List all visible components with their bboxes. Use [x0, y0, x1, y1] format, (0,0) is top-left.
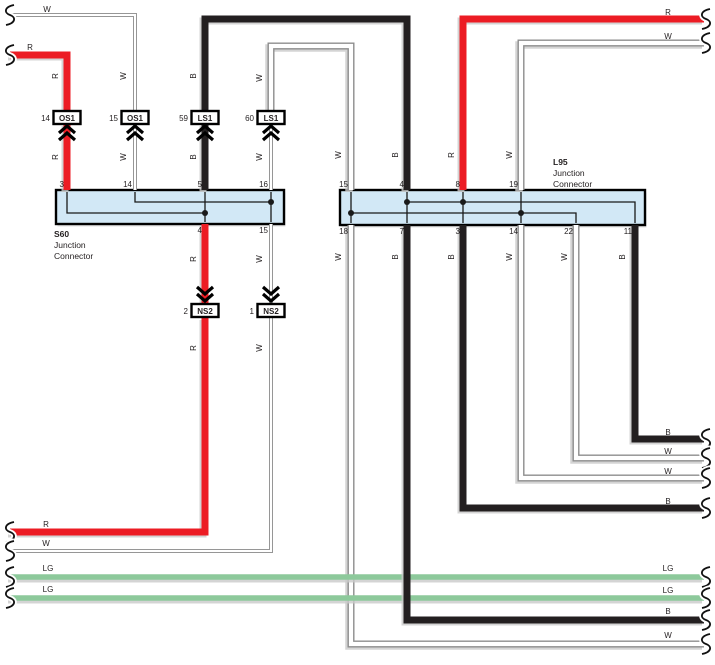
pin-number: 16: [259, 180, 268, 189]
wire-color-label: W: [255, 255, 264, 263]
pin-number: 5: [198, 180, 203, 189]
pin-number: 14: [123, 180, 132, 189]
pin-number: 3: [456, 227, 461, 236]
wire-color-label: B: [189, 154, 198, 159]
connector-number: 2: [184, 307, 189, 316]
junction-box-s60: [56, 190, 284, 224]
wiring-diagram: OS114OS115LS159LS160NS22NS21314516415S60…: [0, 0, 715, 665]
wire-color-label: W: [255, 344, 264, 352]
connector-ls1-60: LS160: [245, 111, 284, 140]
wire-color-label: LG: [43, 585, 54, 594]
wire-color-label: W: [255, 74, 264, 82]
pin-number: 4: [198, 226, 203, 235]
wire-color-label: R: [27, 43, 33, 52]
junction-connector-name-s60: S60: [54, 229, 69, 239]
junction-connector-name-s60: Connector: [54, 251, 93, 261]
junction-connector-name-l95: Connector: [553, 179, 592, 189]
pin-number: 14: [509, 227, 518, 236]
wire-white-outline-top-left-white: [10, 15, 135, 111]
wire-color-label: B: [665, 607, 670, 616]
wire-color-label: B: [391, 254, 400, 259]
junction-box-l95: [340, 190, 645, 225]
wire-color-label: W: [560, 253, 569, 261]
wire-color-label: W: [42, 539, 50, 548]
junction-connector-name-l95: Junction: [553, 168, 585, 178]
wire-white-core-l95-22-white: [576, 225, 704, 458]
pin-number: 11: [624, 227, 633, 236]
connector-number: 59: [179, 114, 188, 123]
connector-ns2-1: NS21: [250, 287, 285, 317]
wire-color-label: B: [447, 254, 456, 259]
connector-number: 14: [41, 114, 50, 123]
pin-number: 19: [509, 180, 518, 189]
pin-number: 8: [456, 180, 461, 189]
wiring-diagram-page: OS114OS115LS159LS160NS22NS21314516415S60…: [0, 0, 715, 665]
junction-connector-name-s60: Junction: [54, 240, 86, 250]
wire-white-outline-top-right-white: [521, 43, 704, 190]
wire-white-core-top-left-white: [10, 15, 135, 111]
wire-color-label: W: [664, 467, 672, 476]
wire-color-label: B: [665, 497, 670, 506]
wire-shadow: [8, 57, 65, 113]
wire-color-label: W: [505, 151, 514, 159]
wire-black-l95-11-black: [635, 225, 704, 439]
junction-dot: [348, 210, 354, 216]
wire-shadow: [405, 227, 702, 622]
wire-color-label: W: [334, 151, 343, 159]
wire-color-label: W: [43, 5, 51, 14]
wire-color-label: W: [664, 631, 672, 640]
wire-color-label: W: [664, 447, 672, 456]
wire-red-ns2-2-to-left-edge: [10, 318, 205, 532]
wire-color-label: LG: [663, 586, 674, 595]
connector-os1-15: OS115: [109, 111, 148, 140]
pin-number: 3: [60, 180, 65, 189]
wire-shadow: [519, 45, 702, 192]
wire-color-label: R: [51, 73, 60, 79]
connector-number: 60: [245, 114, 254, 123]
wire-white-outline-l95-22-white: [576, 225, 704, 458]
junction-dot: [460, 199, 466, 205]
connector-number: 1: [250, 307, 255, 316]
wire-color-label: B: [391, 152, 400, 157]
wire-white-core-top-right-white: [521, 43, 704, 190]
junction-connector-name-l95: L95: [553, 157, 568, 167]
connector-number: 15: [109, 114, 118, 123]
junction-connectors-layer: [56, 190, 647, 228]
wire-shadow: [8, 320, 203, 534]
connector-label: NS2: [263, 307, 279, 316]
junction-dot: [268, 199, 274, 205]
pin-number: 7: [400, 227, 405, 236]
wire-color-label: W: [664, 32, 672, 41]
wire-color-label: W: [505, 253, 514, 261]
wire-color-label: B: [665, 428, 670, 437]
connector-label: OS1: [127, 114, 144, 123]
wire-color-label: W: [119, 153, 128, 161]
wire-color-label: LG: [663, 564, 674, 573]
wire-color-label: R: [189, 345, 198, 351]
wire-color-label: W: [334, 253, 343, 261]
wire-color-label: B: [189, 73, 198, 78]
wire-color-label: R: [189, 256, 198, 262]
wire-color-label: R: [43, 520, 49, 529]
pin-number: 15: [259, 226, 268, 235]
pin-number: 15: [339, 180, 348, 189]
wire-white-outline-ns2-1-to-left-edge: [10, 318, 271, 551]
wire-black-l95-7-black: [407, 225, 704, 620]
connector-label: LS1: [198, 114, 213, 123]
wire-color-label: W: [255, 153, 264, 161]
wire-color-label: W: [119, 72, 128, 80]
pin-number: 18: [339, 227, 348, 236]
connector-label: OS1: [59, 114, 76, 123]
connector-label: LS1: [264, 114, 279, 123]
wire-red-top-left-red: [10, 55, 67, 111]
connector-label: NS2: [197, 307, 213, 316]
wire-white-core-ns2-1-to-left-edge: [10, 318, 271, 551]
junction-dot: [518, 210, 524, 216]
wire-color-label: R: [447, 152, 456, 158]
junction-dot: [404, 199, 410, 205]
pin-number: 4: [400, 180, 405, 189]
wire-black-l95-3-black: [463, 225, 704, 508]
junction-dot: [202, 210, 208, 216]
wires-layer: [8, 15, 704, 646]
wire-color-label: R: [51, 154, 60, 160]
wire-color-label: LG: [43, 564, 54, 573]
wire-color-label: B: [618, 254, 627, 259]
pin-number: 22: [564, 227, 573, 236]
break-symbols-layer: [6, 5, 710, 654]
connector-os1-14: OS114: [41, 111, 80, 140]
wire-shadow: [633, 227, 702, 441]
wire-color-label: R: [665, 8, 671, 17]
connector-ls1-59: LS159: [179, 111, 218, 140]
